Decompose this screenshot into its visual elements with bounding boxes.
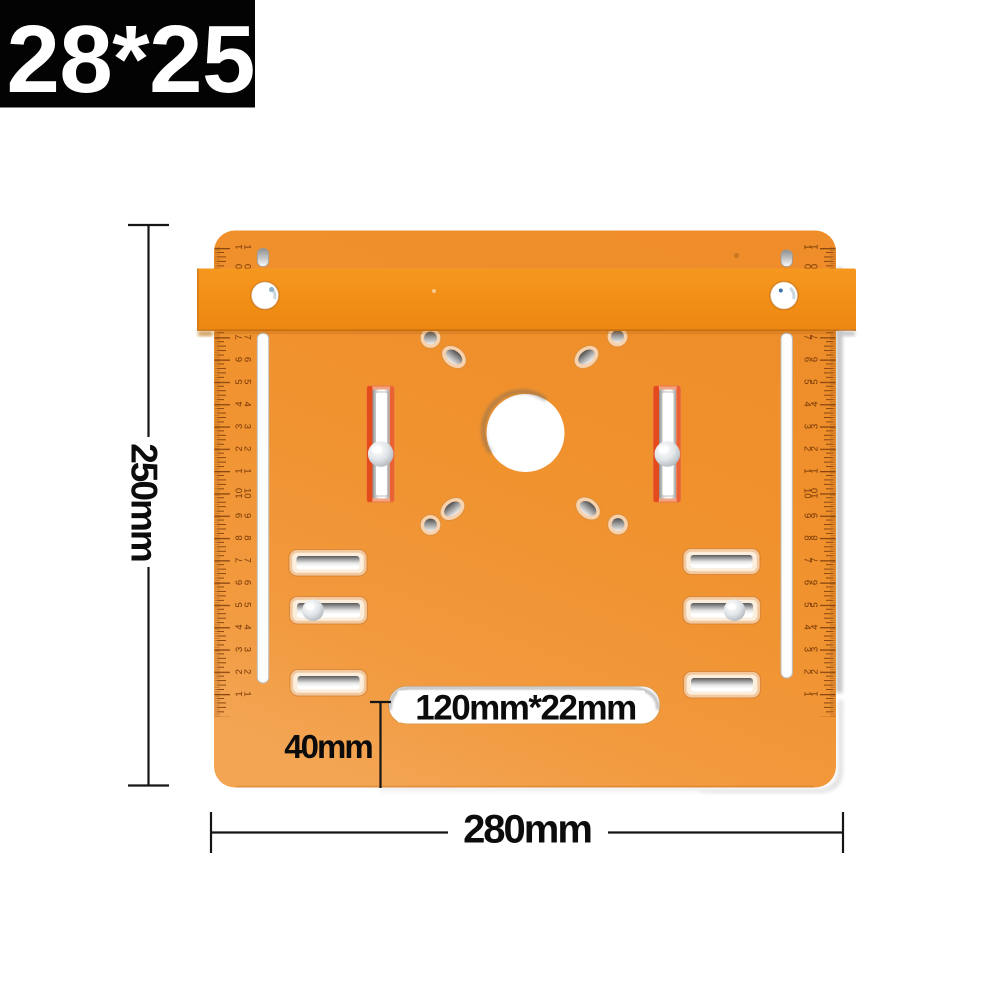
- svg-text:2: 2: [810, 669, 821, 674]
- svg-text:4: 4: [810, 624, 821, 629]
- svg-text:8: 8: [810, 535, 821, 540]
- svg-text:3: 3: [242, 424, 253, 429]
- svg-text:6: 6: [242, 580, 253, 585]
- svg-text:6: 6: [242, 357, 253, 362]
- svg-text:1: 1: [242, 468, 253, 473]
- svg-text:2: 2: [242, 669, 253, 674]
- svg-text:1: 1: [810, 468, 821, 473]
- svg-text:3: 3: [810, 647, 821, 652]
- svg-text:5: 5: [242, 602, 253, 607]
- svg-text:3: 3: [242, 647, 253, 652]
- svg-text:7: 7: [810, 335, 821, 340]
- svg-text:8: 8: [242, 535, 253, 540]
- svg-text:5: 5: [810, 379, 821, 384]
- svg-text:280mm: 280mm: [463, 808, 591, 852]
- svg-text:9: 9: [810, 513, 821, 518]
- svg-text:40mm: 40mm: [284, 728, 372, 765]
- svg-text:7: 7: [242, 335, 253, 340]
- svg-text:5: 5: [242, 379, 253, 384]
- svg-text:28*25: 28*25: [7, 6, 255, 113]
- svg-text:7: 7: [810, 558, 821, 563]
- svg-text:7: 7: [242, 558, 253, 563]
- svg-text:4: 4: [242, 624, 253, 629]
- svg-text:10: 10: [242, 488, 253, 499]
- svg-text:1: 1: [242, 691, 253, 696]
- svg-text:0: 0: [242, 264, 253, 269]
- svg-text:4: 4: [242, 401, 253, 406]
- svg-text:2: 2: [242, 446, 253, 451]
- svg-text:120mm*22mm: 120mm*22mm: [415, 689, 635, 728]
- svg-text:5: 5: [810, 602, 821, 607]
- svg-text:9: 9: [242, 513, 253, 518]
- svg-text:250mm: 250mm: [124, 443, 165, 561]
- svg-text:0: 0: [810, 264, 821, 269]
- svg-text:10: 10: [810, 488, 821, 499]
- svg-text:4: 4: [810, 401, 821, 406]
- svg-text:6: 6: [810, 580, 821, 585]
- svg-text:3: 3: [810, 424, 821, 429]
- svg-text:1: 1: [242, 244, 253, 249]
- svg-text:2: 2: [810, 446, 821, 451]
- svg-text:6: 6: [810, 357, 821, 362]
- svg-text:1: 1: [810, 244, 821, 249]
- svg-text:1: 1: [810, 691, 821, 696]
